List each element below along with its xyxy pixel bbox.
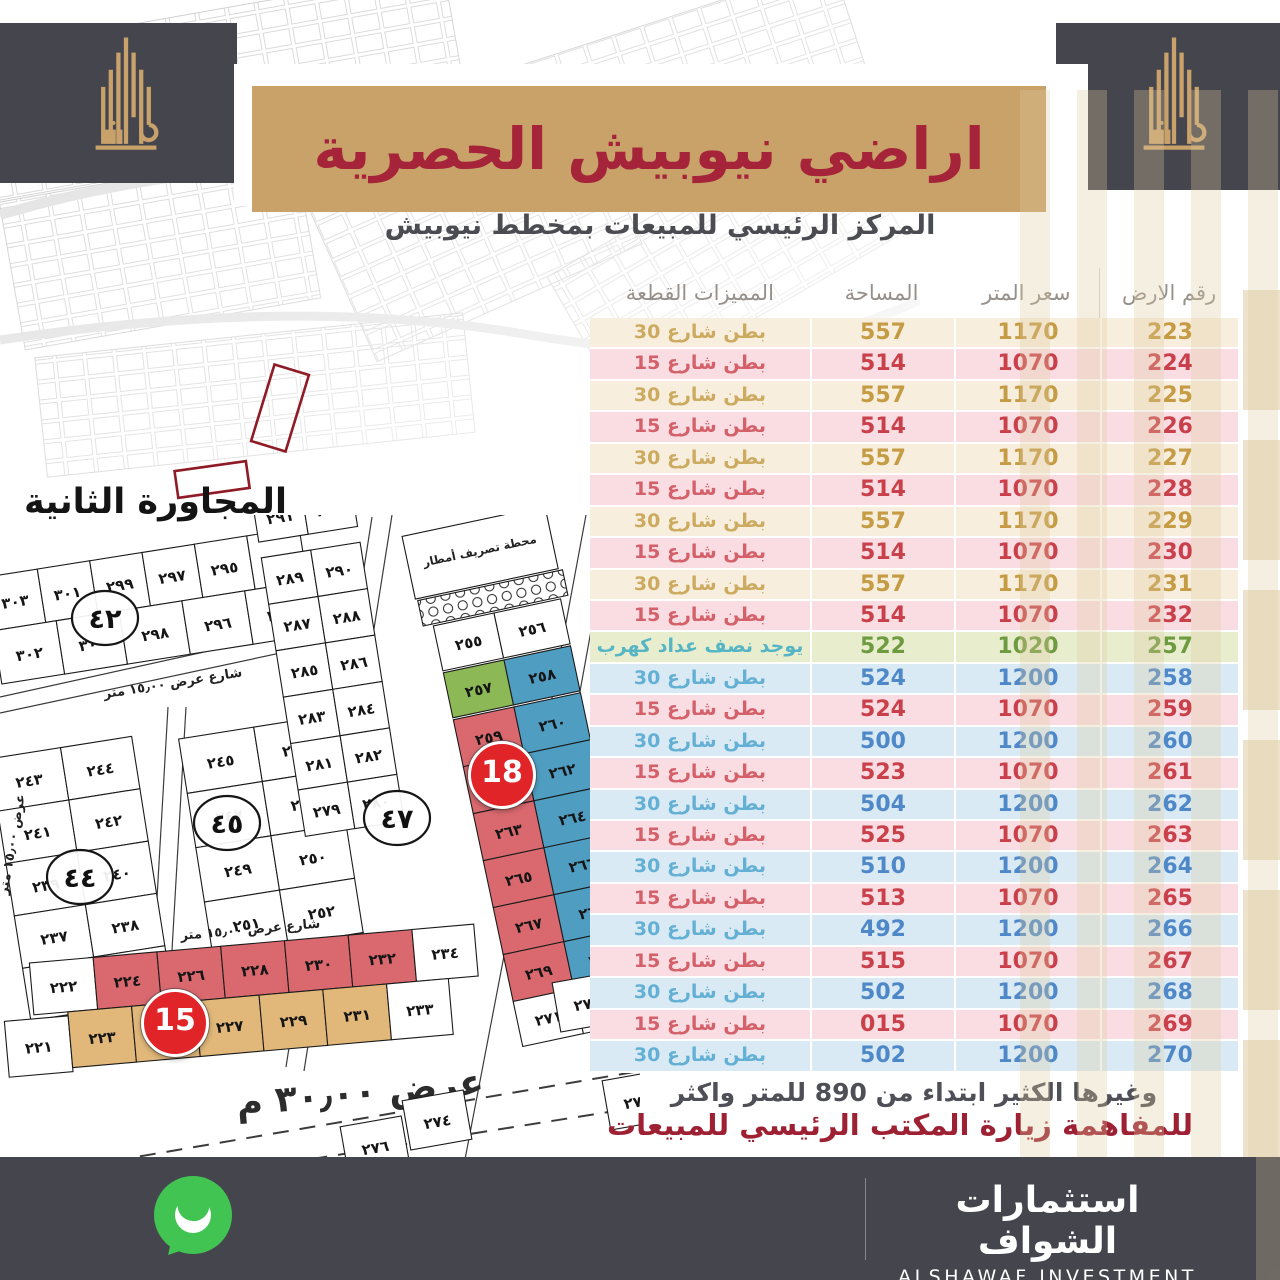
plots-table-header: رقم الارض سعر المتر المساحة المميزات الق… — [590, 268, 1238, 318]
svg-text:٢٢٧: ٢٢٧ — [215, 1017, 244, 1037]
alshawaf-logo-icon — [1136, 30, 1212, 176]
table-row: 2681200502بطن شارع 30 — [590, 978, 1238, 1009]
table-row: 2701200502بطن شارع 30 — [590, 1041, 1238, 1072]
plan-map: ٣٠٣٣٠١٢٩٩٢٩٧٢٩٥٢٩٣٣٠٢٣٠٠٢٩٨٢٩٦٢٩٤شارع عر… — [0, 515, 640, 1175]
alshawaf-logo-icon — [88, 30, 164, 176]
company-block: استثمارات الشواف ALSHAWAF INVESTMENT — [880, 1180, 1215, 1280]
table-row: 2271170557بطن شارع 30 — [590, 444, 1238, 475]
title-banner: اراضي نيوبيش الحصرية — [252, 86, 1046, 212]
note-visit-office: للمفاهمة زيارة المكتب الرئيسي للمبيعات — [560, 1108, 1240, 1142]
svg-text:٤٥: ٤٥ — [211, 809, 244, 840]
note-more-offers: وغيرها الكثير ابتداء من 890 للمتر واكثر — [590, 1078, 1238, 1107]
map-badge-18: 18 — [468, 741, 536, 809]
table-row: 2251170557بطن شارع 30 — [590, 381, 1238, 412]
contact-divider — [865, 1178, 866, 1260]
svg-text:٢٣٤: ٢٣٤ — [431, 944, 460, 964]
table-row: 2281070514بطن شارع 15 — [590, 475, 1238, 506]
page-subtitle: المركز الرئيسي للمبيعات بمخطط نيوبيش — [370, 210, 950, 241]
table-row: 2261070514بطن شارع 15 — [590, 412, 1238, 443]
map-badge-15: 15 — [141, 989, 209, 1057]
svg-text:٢٣٣: ٢٣٣ — [406, 1000, 435, 1020]
whatsapp-icon — [148, 1173, 238, 1263]
table-row: 2231170557بطن شارع 30 — [590, 318, 1238, 349]
company-name-english: ALSHAWAF INVESTMENT — [880, 1266, 1215, 1280]
table-row: 2291170557بطن شارع 30 — [590, 507, 1238, 538]
table-row: 2571020522يوجد نصف عداد كهرب — [590, 632, 1238, 663]
table-row: 2611070523بطن شارع 15 — [590, 758, 1238, 789]
district-label: المجاورة الثانية — [24, 482, 287, 522]
svg-text:٢٢٣: ٢٢٣ — [88, 1028, 117, 1048]
svg-text:٢٢٨: ٢٢٨ — [240, 960, 269, 980]
svg-text:٢٢٢: ٢٢٢ — [49, 977, 78, 997]
table-row: 2651070513بطن شارع 15 — [590, 884, 1238, 915]
svg-text:٢٢٤: ٢٢٤ — [113, 971, 142, 991]
table-row: 2311170557بطن شارع 30 — [590, 570, 1238, 601]
table-row: 2641200510بطن شارع 30 — [590, 852, 1238, 883]
plots-table: رقم الارض سعر المتر المساحة المميزات الق… — [590, 268, 1238, 1073]
svg-text:٢٢٦: ٢٢٦ — [177, 966, 206, 986]
table-row: 2591070524بطن شارع 15 — [590, 695, 1238, 726]
table-row: 2601200500بطن شارع 30 — [590, 727, 1238, 758]
page-title: اراضي نيوبيش الحصرية — [313, 115, 984, 183]
svg-text:٢٣١: ٢٣١ — [343, 1005, 372, 1025]
header-land-number: رقم الارض — [1099, 268, 1238, 318]
table-row: 2321070514بطن شارع 15 — [590, 601, 1238, 632]
svg-text:٤٧: ٤٧ — [381, 804, 414, 835]
table-row: 2241070514بطن شارع 15 — [590, 349, 1238, 380]
company-name-arabic: استثمارات الشواف — [880, 1180, 1215, 1262]
svg-text:٤٤: ٤٤ — [64, 863, 97, 894]
plots-table-body: 2231170557بطن شارع 302241070514بطن شارع … — [590, 318, 1238, 1073]
table-row: 2581200524بطن شارع 30 — [590, 664, 1238, 695]
svg-text:٢٣٠: ٢٣٠ — [304, 955, 333, 975]
table-row: 2621200504بطن شارع 30 — [590, 790, 1238, 821]
table-row: 2631070525بطن شارع 15 — [590, 821, 1238, 852]
svg-text:٤٢: ٤٢ — [89, 604, 122, 635]
table-row: 2661200492بطن شارع 30 — [590, 915, 1238, 946]
header-meter-price: سعر المتر — [953, 268, 1099, 318]
svg-text:٢٢١: ٢٢١ — [24, 1037, 53, 1057]
svg-text:شارع عرض ١٥٫٠٠ متر: شارع عرض ١٥٫٠٠ متر — [102, 665, 244, 702]
table-row: 2691070015بطن شارع 15 — [590, 1010, 1238, 1041]
svg-text:٢٢٩: ٢٢٩ — [279, 1011, 308, 1031]
svg-text:٢٣٢: ٢٣٢ — [368, 949, 397, 969]
watermark-column — [1243, 260, 1280, 1160]
plan-generated: ٣٠٣٣٠١٢٩٩٢٩٧٢٩٥٢٩٣٣٠٢٣٠٠٢٩٨٢٩٦٢٩٤شارع عر… — [0, 515, 640, 1175]
table-row: 2671070515بطن شارع 15 — [590, 947, 1238, 978]
table-row: 2301070514بطن شارع 15 — [590, 538, 1238, 569]
flyer-canvas: اراضي نيوبيش الحصرية المركز الرئيسي للمب… — [0, 0, 1280, 1280]
header-area: المساحة — [810, 268, 954, 318]
header-features: المميزات القطعة — [590, 268, 810, 318]
